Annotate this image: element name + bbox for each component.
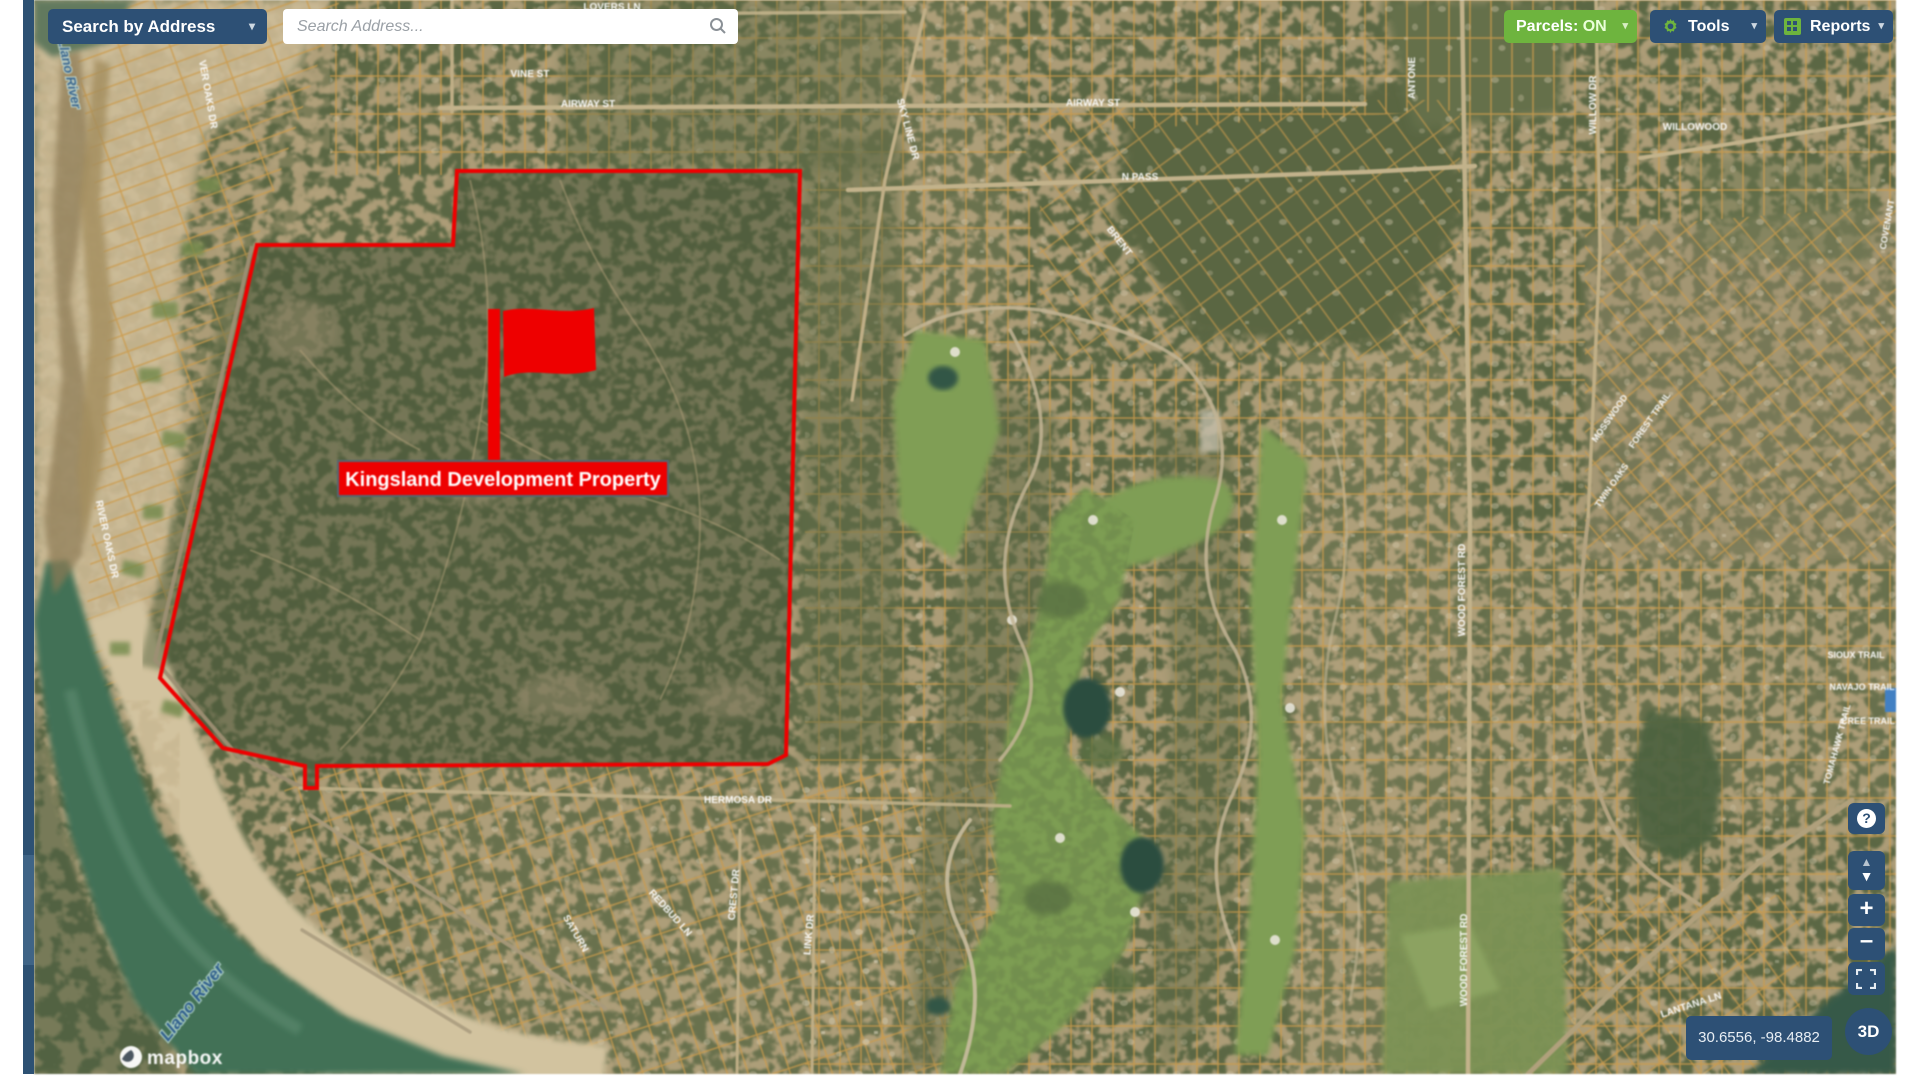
- svg-text:WOOD FOREST RD: WOOD FOREST RD: [1457, 544, 1468, 637]
- svg-text:WILLOW DR: WILLOW DR: [1588, 75, 1599, 135]
- svg-text:AIRWAY ST: AIRWAY ST: [1066, 98, 1120, 109]
- svg-text:N PASS: N PASS: [1122, 172, 1159, 183]
- svg-text:WOOD FOREST RD: WOOD FOREST RD: [1459, 914, 1470, 1007]
- svg-text:mapbox: mapbox: [147, 1048, 223, 1069]
- svg-text:HERMOSA DR: HERMOSA DR: [704, 795, 773, 806]
- svg-text:NAVAJO TRAIL: NAVAJO TRAIL: [1829, 682, 1895, 692]
- svg-text:SIOUX TRAIL: SIOUX TRAIL: [1827, 650, 1885, 660]
- svg-text:Kingsland Development Property: Kingsland Development Property: [345, 469, 661, 491]
- svg-text:ANTONE: ANTONE: [1407, 57, 1418, 99]
- svg-text:WILLOWOOD: WILLOWOOD: [1663, 122, 1727, 133]
- svg-text:AIRWAY ST: AIRWAY ST: [561, 99, 615, 110]
- svg-text:VINE ST: VINE ST: [511, 69, 550, 80]
